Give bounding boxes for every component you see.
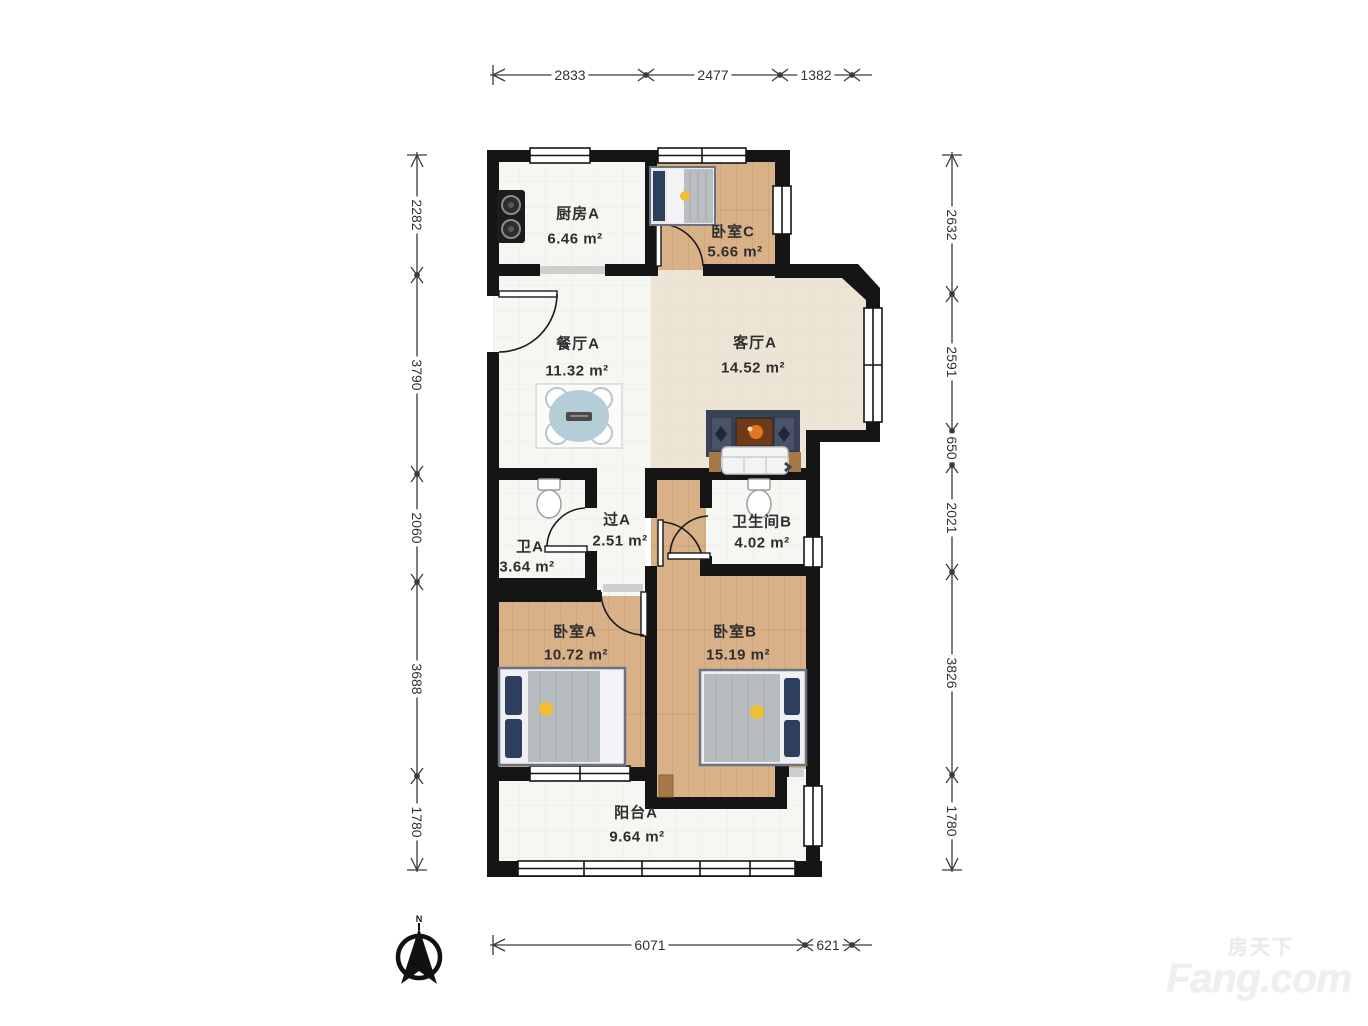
- fang-watermark-en: Fang.com: [1166, 958, 1366, 999]
- bedroom-a-area: 10.72 m²: [544, 647, 608, 664]
- bedroom-b-floor-ext: [657, 767, 775, 801]
- dim-right-1: 2591: [944, 343, 960, 380]
- kitchen-window: [530, 148, 590, 163]
- dim-right-0: 2632: [944, 206, 960, 243]
- dim-top-1: 2477: [694, 67, 731, 83]
- bedroom-c-bed: [650, 167, 715, 225]
- living-name: 客厅A: [733, 332, 777, 353]
- dim-bottom-1: 621: [813, 937, 842, 953]
- bedroom-b-area: 15.19 m²: [706, 647, 770, 664]
- bath-b-window: [804, 537, 822, 567]
- dim-bottom-0: 6071: [631, 937, 668, 953]
- bedroom-a-bed: [499, 668, 625, 765]
- balcony-name: 阳台A: [614, 802, 658, 823]
- bath-a-toilet: [537, 479, 561, 518]
- dim-right-3: 2021: [944, 499, 960, 536]
- kitchen-area: 6.46 m²: [547, 231, 602, 248]
- bedroom-a-name: 卧室A: [553, 621, 597, 642]
- bedroom-b-name: 卧室B: [713, 621, 757, 642]
- bath-b-name: 卫生间B: [732, 511, 792, 532]
- compass-icon: [398, 923, 440, 984]
- dining-area: 11.32 m²: [545, 363, 608, 380]
- dim-left-1: 3790: [409, 356, 425, 393]
- dim-top-0: 2833: [551, 67, 588, 83]
- bedroom-c-name: 卧室C: [711, 221, 755, 242]
- floorplan-canvas: 厨房A 6.46 m² 卧室C 5.66 m² 餐厅A 11.32 m² 客厅A…: [0, 0, 1368, 1026]
- bedroom-b-bed: [700, 670, 806, 765]
- compass-north-label: N: [416, 914, 423, 924]
- living-area: 14.52 m²: [721, 360, 785, 377]
- bedroom-c-top-window: [658, 148, 746, 163]
- dining-table: [536, 384, 622, 448]
- balcony-bottom-window: [518, 861, 795, 876]
- dining-name: 餐厅A: [556, 333, 600, 354]
- dim-left-0: 2282: [409, 196, 425, 233]
- bath-b-area: 4.02 m²: [734, 535, 789, 552]
- balcony-area: 9.64 m²: [609, 829, 664, 846]
- kitchen-name: 厨房A: [556, 203, 600, 224]
- bedroom-c-side-window: [773, 186, 791, 234]
- dim-right-5: 1780: [944, 802, 960, 839]
- bath-a-name: 卫A: [516, 536, 544, 557]
- kitchen-stove: [497, 190, 525, 243]
- dim-right-4: 3826: [944, 654, 960, 691]
- bedroom-c-area: 5.66 m²: [707, 244, 762, 261]
- dim-left-2: 2060: [409, 509, 425, 546]
- bath-a-area: 3.64 m²: [499, 559, 554, 576]
- hallway-area: 2.51 m²: [592, 533, 647, 550]
- hallway-name: 过A: [603, 509, 631, 530]
- balcony-side-window: [804, 786, 822, 846]
- bedroom-b-nightstand: [659, 775, 673, 797]
- floorplan-drawing: [0, 0, 1368, 1026]
- bedroom-a-balcony-window: [530, 766, 630, 781]
- dim-top-2: 1382: [797, 67, 834, 83]
- dim-left-4: 1780: [409, 803, 425, 840]
- sofa: [709, 447, 801, 474]
- dim-left-3: 3688: [409, 660, 425, 697]
- fang-watermark: 房天下 Fang.com: [1166, 938, 1366, 999]
- dim-right-2: 650: [944, 433, 960, 462]
- living-window: [864, 308, 882, 422]
